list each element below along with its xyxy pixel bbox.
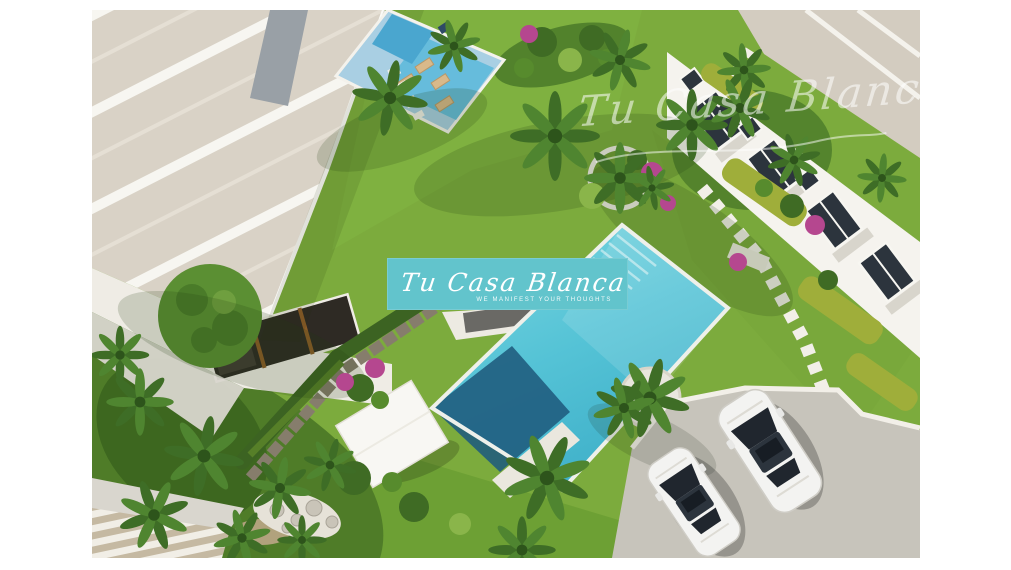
watermark-tagline: We manifest your thoughts [476,297,612,303]
watermark-brand: Tu Casa Blanca [399,270,627,295]
watermark-brand-row: Tu Casa Blanca [387,265,628,295]
watermark-box: Tu Casa Blanca We manifest your thoughts [387,258,628,310]
page-background: Tu Casa Blanca Tu Casa Blanca We manifes… [0,0,1011,570]
aerial-render-photo: Tu Casa Blanca Tu Casa Blanca We manifes… [92,10,920,558]
